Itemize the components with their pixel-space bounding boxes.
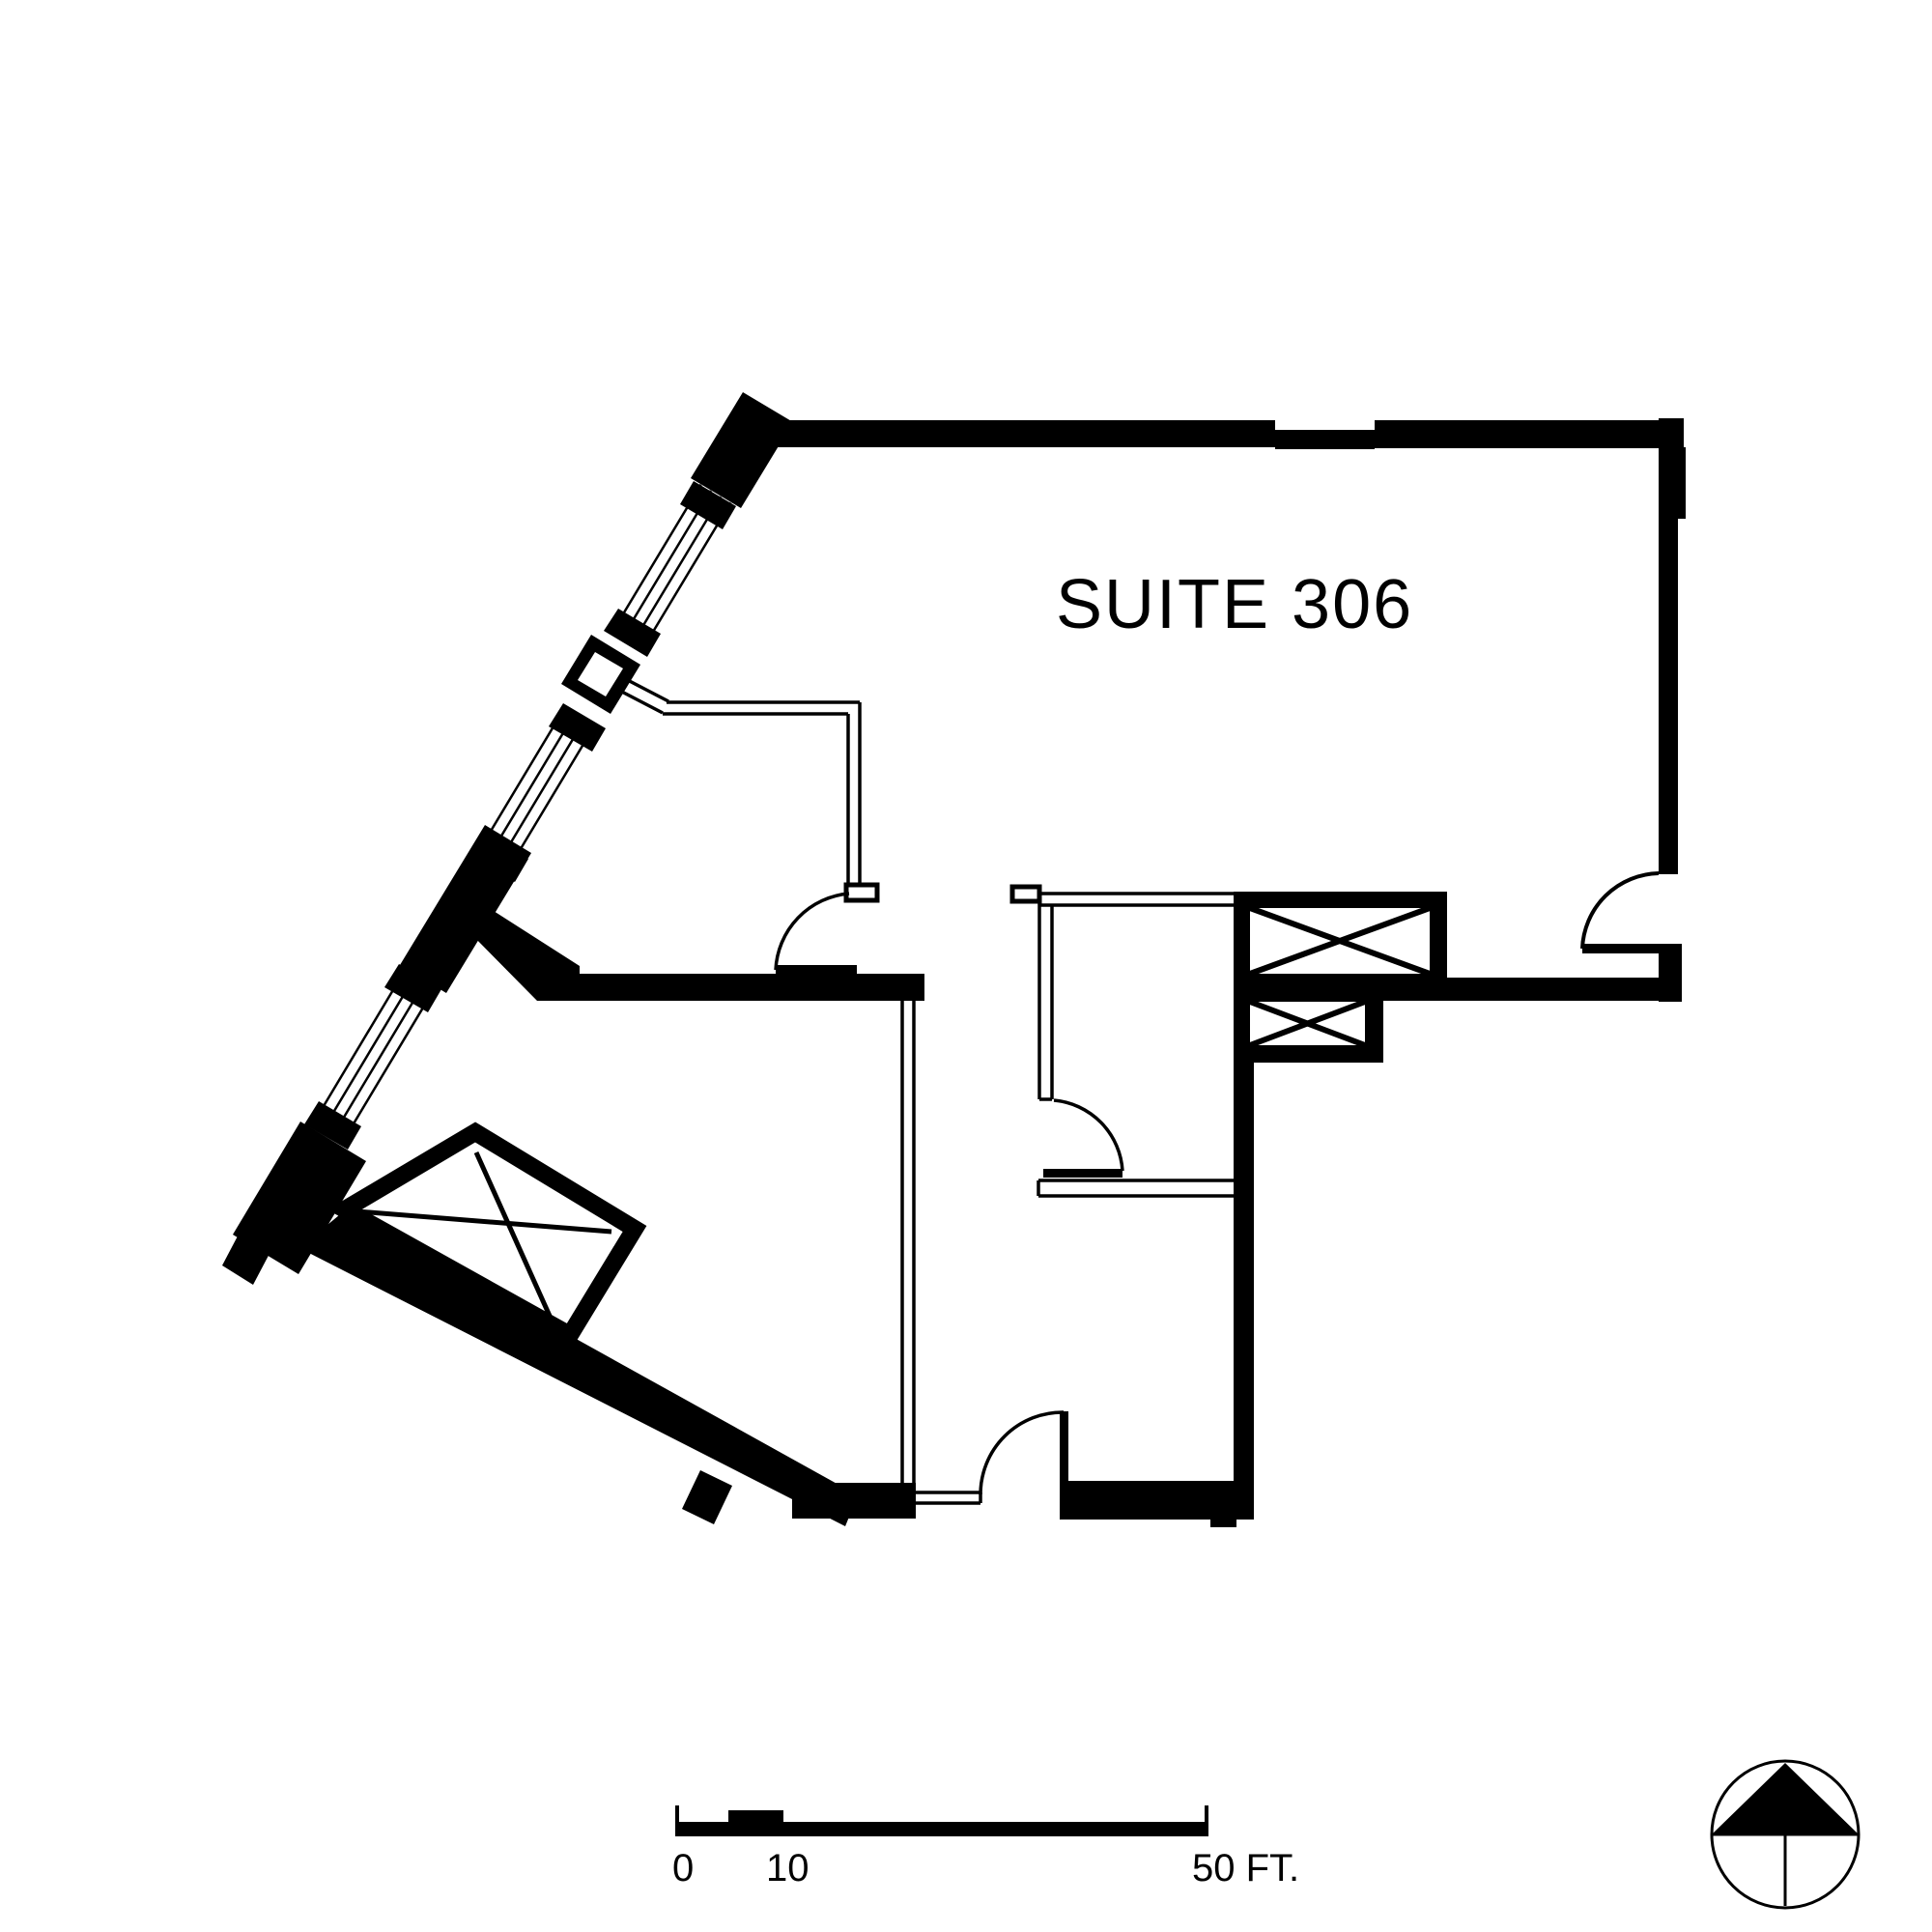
- entry-door-leaf: [1582, 944, 1663, 953]
- top-wall-right: [1375, 420, 1659, 448]
- window-mullions: [304, 481, 736, 1150]
- floor-plan-sheet: SUITE 306: [0, 0, 1932, 1932]
- floor-plan-drawing: SUITE 306: [0, 0, 1932, 1932]
- room-b-door-leaf: [1043, 1169, 1122, 1178]
- entry-door-swing-arc: [1582, 873, 1659, 949]
- room-a-partitions: [614, 676, 877, 974]
- middle-wall-angled: [467, 904, 580, 1001]
- room-b-door-swing-arc: [1054, 1100, 1122, 1171]
- scale-label-0: 0: [672, 1847, 694, 1889]
- suite-title: SUITE 306: [1056, 566, 1413, 643]
- room-a-door-swing-arc: [776, 894, 849, 970]
- room-a-door-jamb-stub: [846, 885, 877, 900]
- bottom-door-leaf: [1060, 1411, 1068, 1492]
- bottom-door-swing-arc: [980, 1412, 1064, 1494]
- top-wall-left: [768, 420, 1275, 447]
- right-wall: [1659, 519, 1678, 874]
- right-wall-upper: [1659, 447, 1686, 519]
- room-a-door-leaf: [776, 965, 857, 974]
- scale-bar-left-tick: [675, 1805, 679, 1836]
- window-glazing-lines: [312, 485, 731, 1145]
- window-connector-box: [561, 635, 640, 714]
- bottom-wall-notch: [1210, 1520, 1236, 1527]
- room-b-jamb-stub: [1012, 887, 1039, 901]
- middle-wall-horizontal: [565, 974, 924, 1001]
- center-partition: [902, 1001, 1068, 1503]
- scale-bar: 0 10 50 FT.: [672, 1805, 1299, 1889]
- diagonal-wall-stub: [682, 1470, 732, 1524]
- scale-label-10: 10: [766, 1847, 810, 1889]
- scale-bar-right-tick: [1205, 1805, 1208, 1836]
- bottom-wall-middle: [1060, 1481, 1253, 1520]
- middle-wall: [467, 904, 924, 1001]
- room-b-partitions: [1012, 887, 1234, 1196]
- shaft-2: [1234, 985, 1383, 1063]
- entry-door: [1582, 873, 1663, 953]
- scale-label-50ft: 50 FT.: [1192, 1847, 1299, 1889]
- window-wall: [304, 481, 736, 1150]
- shaft-1: [1234, 892, 1447, 991]
- north-arrow-icon: [1712, 1761, 1859, 1908]
- exterior-walls: [222, 392, 1686, 1527]
- scale-bar-raised-segment: [728, 1810, 783, 1825]
- top-wall-jog: [1275, 430, 1375, 449]
- top-right-corner: [1659, 418, 1684, 447]
